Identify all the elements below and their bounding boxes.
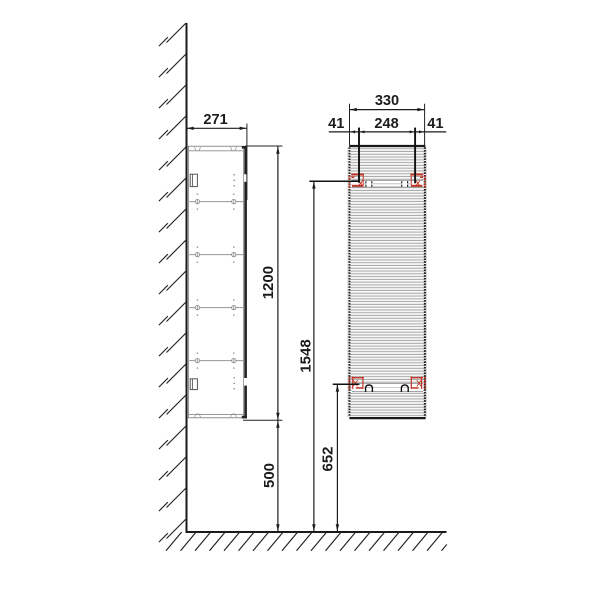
svg-text:248: 248 — [374, 116, 398, 132]
svg-text:1548: 1548 — [298, 339, 315, 372]
svg-text:41: 41 — [328, 116, 344, 132]
svg-text:41: 41 — [427, 116, 443, 132]
svg-text:500: 500 — [261, 463, 278, 488]
svg-text:652: 652 — [320, 446, 337, 471]
svg-text:271: 271 — [203, 112, 227, 128]
svg-text:1200: 1200 — [260, 266, 277, 299]
svg-text:330: 330 — [375, 93, 399, 109]
